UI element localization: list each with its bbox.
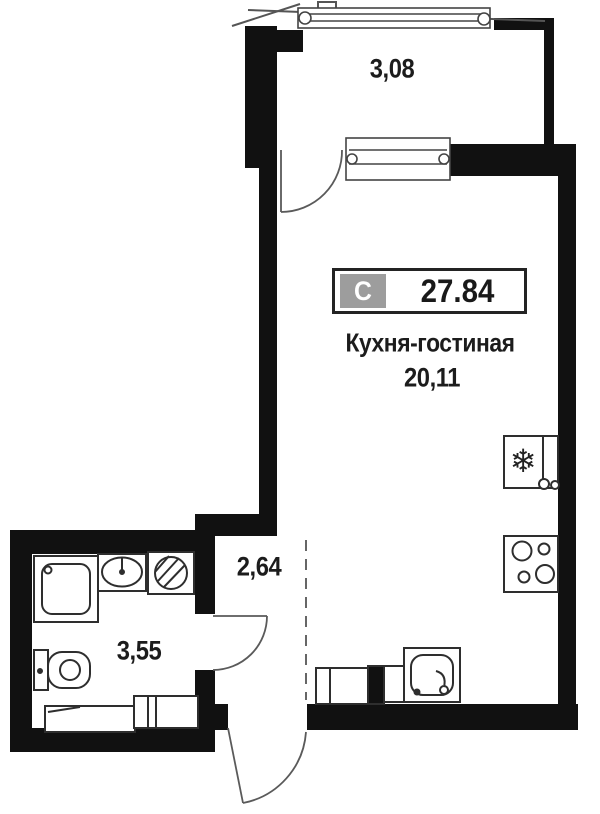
glazing-end-cap (299, 12, 311, 24)
kitchen-sink (404, 648, 460, 702)
wall-bathroom-top (10, 530, 215, 554)
burner-large (513, 542, 532, 561)
stove-body (504, 536, 558, 592)
burner-medium (536, 565, 554, 583)
door-swing-arc (243, 732, 306, 803)
burner-small (519, 572, 530, 583)
shower-drain (45, 567, 52, 574)
cabinet-box (134, 696, 198, 728)
window-end-cap (347, 154, 357, 164)
toilet (34, 650, 90, 690)
hallway-area-label: 2,64 (237, 552, 281, 583)
wall-bathroom-left (10, 530, 32, 752)
shower-tray (34, 556, 98, 622)
bathroom-area-label: 3,55 (117, 636, 161, 667)
glazing-frame (298, 8, 490, 28)
burner-small (539, 544, 550, 555)
balcony-area-label: 3,08 (370, 54, 414, 85)
kitchen-living-room-name: Кухня-гостиная (345, 328, 514, 359)
toilet-drain (60, 660, 80, 680)
sink-drain (415, 690, 420, 695)
fridge-hinge (551, 481, 559, 489)
unit-info-badge: С 27.84 (332, 268, 527, 314)
wall-balcony-top-stub (277, 30, 303, 52)
balcony-glazing-window (298, 8, 490, 28)
toilet-valve (38, 669, 42, 673)
fridge-hinge (539, 479, 549, 489)
door-swing-arc (213, 616, 267, 670)
snowflake-icon: ❄ (510, 445, 537, 477)
kitchen-living-area-label: 20,11 (404, 363, 460, 394)
balcony-door (281, 150, 342, 212)
kitchen-cabinet (316, 666, 404, 704)
window-end-cap (439, 154, 449, 164)
basin-drain (120, 570, 124, 574)
entrance-door (228, 728, 306, 803)
balcony-partition-window (346, 138, 450, 180)
stove (504, 536, 558, 592)
wall-entry-left-stub (215, 704, 228, 730)
walls (10, 18, 578, 752)
wall-balcony-partition (450, 144, 576, 176)
unit-type-badge: С (340, 274, 386, 308)
wall-balcony-right-thin (544, 24, 554, 148)
sink-faucet (440, 686, 448, 694)
wall-right (558, 146, 576, 730)
washing-machine (148, 552, 194, 594)
floor-plan-drawing (0, 0, 600, 814)
wall-bottom (307, 704, 578, 730)
window-frame (346, 138, 450, 180)
floor-plan-page: 3,08 С 27.84 Кухня-гостиная 20,11 2,64 3… (0, 0, 600, 814)
cabinet-box (316, 668, 370, 704)
neighbor-divider-line (232, 4, 300, 26)
washer-drum (155, 557, 187, 589)
cabinet-divided (134, 696, 198, 728)
glazing-end-cap (478, 13, 490, 25)
cabinet-low (45, 706, 135, 732)
door-swing-arc (281, 150, 342, 212)
wall-balcony-left (245, 26, 277, 168)
kitchen-duct (368, 666, 384, 704)
washbasin (98, 554, 146, 591)
door-leaf (228, 728, 243, 803)
unit-total-area: 27.84 (396, 271, 518, 311)
wall-bathroom-right-upper (195, 530, 215, 614)
wall-main-left (259, 160, 277, 536)
bathroom-door (213, 616, 267, 670)
cabinet-box-2 (384, 666, 404, 702)
